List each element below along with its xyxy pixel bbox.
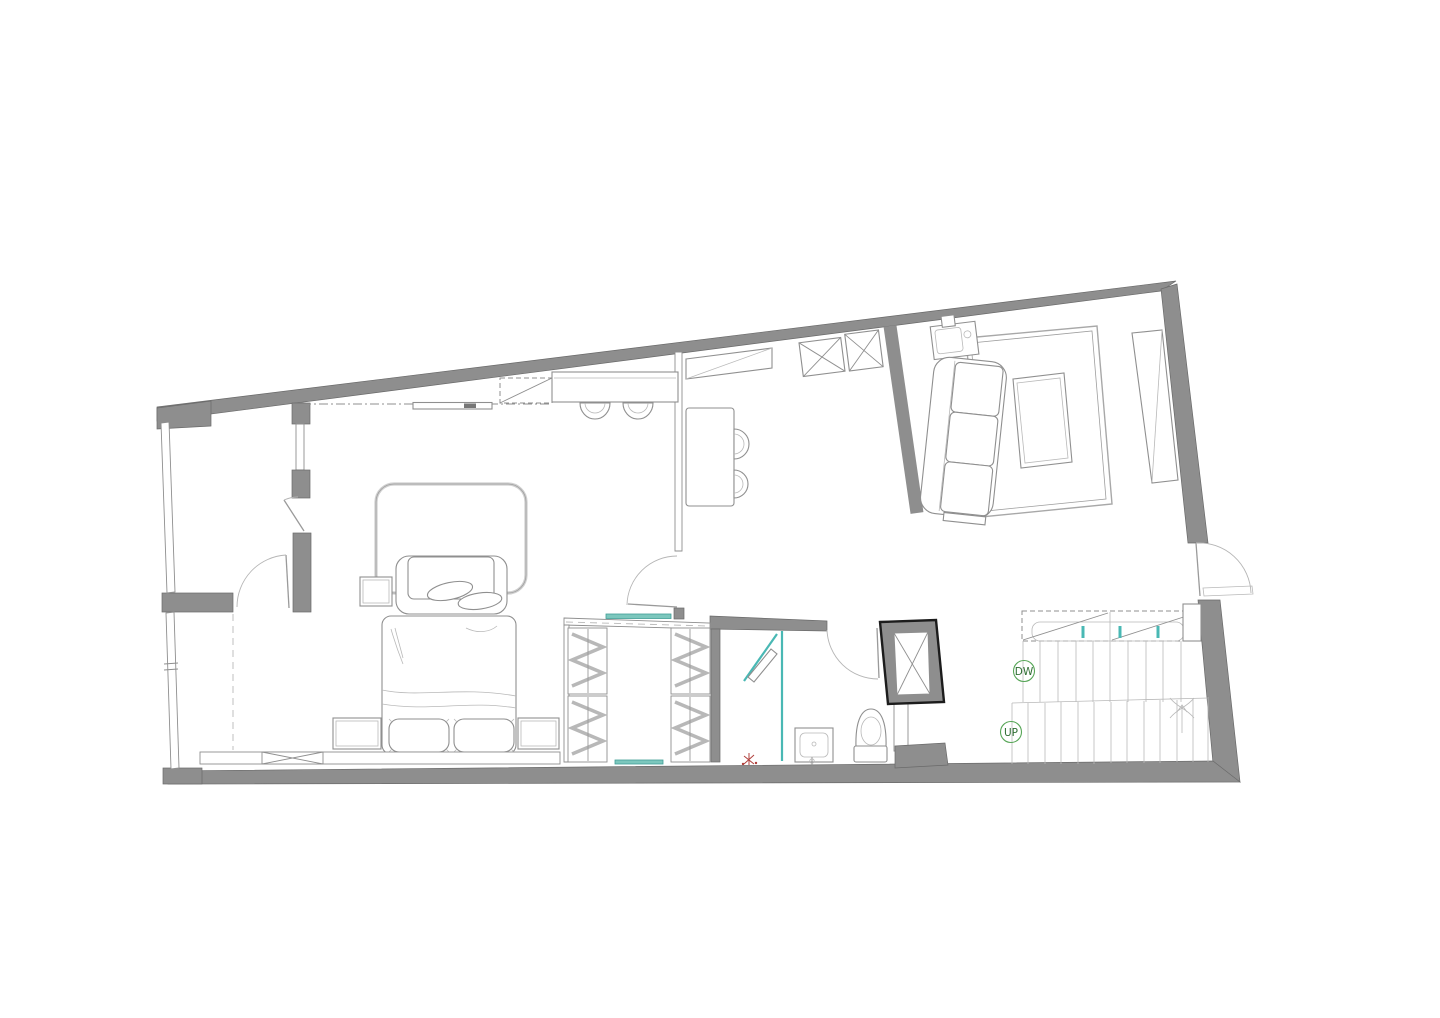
bathroom (742, 631, 887, 766)
toilet-bowl (856, 709, 886, 748)
wall-below-shaft (894, 703, 908, 751)
sofa-cushion (951, 362, 1004, 417)
bathroom-left-wall (711, 629, 720, 762)
bedroom-left-door (237, 555, 289, 608)
living-partition-wall (890, 326, 917, 513)
stairs-up-label: UP (1004, 727, 1018, 739)
living-room (918, 312, 1178, 525)
bed (382, 616, 516, 754)
bedroom (200, 378, 560, 764)
closet-rack-right (671, 628, 710, 762)
floor-plan: DW UP (0, 0, 1440, 1018)
left-window-wall-upper (161, 422, 175, 593)
bar-stool (580, 403, 610, 419)
thin-wall (296, 424, 304, 470)
entry-door-swing (1196, 543, 1251, 593)
closet-top-wall (564, 618, 710, 629)
entry-threshold (1203, 586, 1253, 596)
door-swing (237, 555, 286, 607)
stair-treads-upper (1023, 641, 1181, 702)
nightstand-left (333, 718, 381, 749)
bottom-plinth (200, 752, 560, 764)
hall-bedroom-door (627, 556, 677, 607)
stair-handrail (1032, 622, 1184, 641)
wall-block (292, 470, 310, 498)
entry-door-leaf (1196, 543, 1200, 596)
wall-tv (413, 403, 492, 410)
ceiling-box (845, 330, 883, 371)
stair-treads-lower (1012, 699, 1208, 764)
pillow (389, 719, 449, 752)
door-swing (627, 556, 677, 605)
pillow (454, 719, 514, 752)
glass-top (606, 614, 671, 619)
stair-newel-post (1183, 604, 1201, 641)
walk-in-closet (568, 614, 710, 764)
left-window-wall-lower (166, 612, 179, 769)
door-leaf (628, 604, 677, 607)
ceiling-box (799, 337, 845, 376)
toilet-tank (854, 746, 887, 762)
sofa-cushion (940, 461, 993, 516)
toilet (854, 709, 887, 762)
bottom-left-step (163, 768, 202, 784)
door-leaf (286, 555, 289, 608)
wall-block (292, 403, 310, 424)
door-swing (827, 630, 878, 679)
balustrade-diagonal (1023, 613, 1108, 640)
floor-plan-drawing: DW UP (0, 0, 1440, 1018)
staircase: DW UP (1001, 604, 1210, 764)
desk-chair (734, 429, 749, 459)
door-leaf (284, 500, 304, 531)
desk-chair (734, 470, 748, 498)
right-wall-lower (1198, 600, 1240, 782)
wall-block (293, 533, 311, 612)
tv-mount (464, 404, 476, 409)
stairs-down-label: DW (1015, 666, 1034, 678)
closet-rack-left (568, 628, 607, 762)
glass-bottom (615, 760, 663, 764)
bathroom-door (827, 628, 879, 679)
small-closet-door (284, 497, 304, 531)
bathroom-top-wall (710, 616, 827, 631)
door-leaf (877, 628, 879, 678)
stair-direction-arrow (1170, 698, 1194, 733)
sofa (918, 356, 1008, 526)
left-wall-stub (162, 593, 233, 612)
nightstand-right (518, 718, 559, 749)
bottom-wall (168, 761, 1240, 784)
kitchen-counter (552, 372, 678, 402)
bar-stool (623, 403, 653, 419)
door-post (674, 608, 684, 619)
floor-drain (742, 753, 757, 765)
door-swing (284, 497, 298, 500)
landing-line (1012, 698, 1209, 703)
bottom-wall-wedge (895, 743, 948, 768)
desk (686, 408, 734, 506)
coffee-table (1013, 373, 1072, 468)
sofa-cushion (945, 412, 998, 467)
cabinet-diagonal (500, 378, 552, 403)
entry-door (1196, 543, 1253, 596)
side-table (360, 577, 392, 606)
